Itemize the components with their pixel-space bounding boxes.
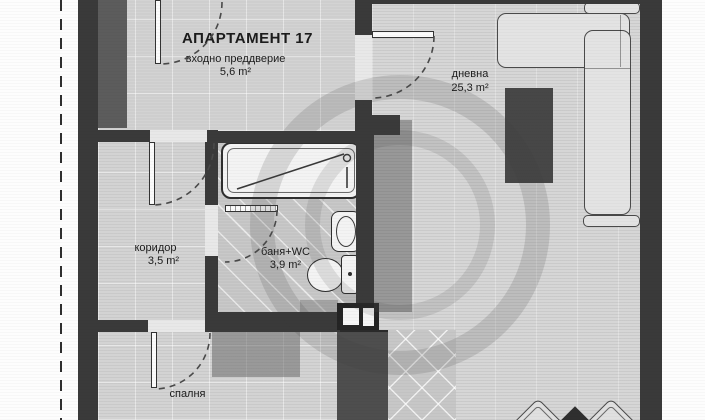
bath-right-wall bbox=[356, 131, 374, 313]
bedroom-top-wall-left bbox=[98, 320, 148, 332]
bedroom-door-leaf bbox=[151, 332, 157, 388]
sofa-armrest-bottom bbox=[583, 215, 640, 227]
stove-burner-right bbox=[363, 308, 374, 326]
bath-door-opening bbox=[205, 205, 218, 256]
coffee-table bbox=[505, 88, 553, 183]
dining-chair-left bbox=[511, 398, 565, 420]
living-door-opening bbox=[355, 35, 372, 100]
dining-set bbox=[495, 390, 645, 420]
bath-top-wall bbox=[218, 131, 358, 143]
right-outer-wall bbox=[640, 0, 662, 420]
bedroom-label: спалня bbox=[140, 388, 235, 401]
washbasin-bowl bbox=[336, 216, 356, 247]
dining-chair-right-back bbox=[591, 405, 631, 420]
kitchen-tiles-floor bbox=[388, 330, 456, 420]
corridor-door-opening bbox=[150, 130, 207, 142]
bath-door-leaf bbox=[225, 205, 278, 212]
living-area: 25,3 m² bbox=[420, 82, 520, 95]
bath-label: баня+WC bbox=[238, 246, 333, 259]
hall-label: входно преддверие bbox=[158, 53, 313, 66]
corridor-area: 3,5 m² bbox=[116, 255, 211, 268]
kitchen-counter-block bbox=[337, 330, 388, 420]
dining-chair-right bbox=[584, 398, 638, 420]
left-outer-wall bbox=[78, 0, 98, 420]
sofa-seam-vertical bbox=[620, 15, 621, 67]
corridor-door-leaf bbox=[149, 142, 155, 205]
sofa-seam-horizontal bbox=[585, 68, 630, 69]
bedroom-door-opening bbox=[148, 320, 205, 332]
hall-area: 5,6 m² bbox=[158, 66, 313, 79]
bedroom-wardrobe bbox=[212, 332, 300, 377]
floorplan-canvas: АПАРТАМЕНТ 17 входно преддверие 5,6 m² д… bbox=[0, 0, 705, 420]
toilet-tank-button bbox=[348, 272, 352, 276]
bath-area: 3,9 m² bbox=[238, 259, 333, 272]
dining-table-corner bbox=[555, 406, 595, 420]
sofa-seat-right bbox=[584, 30, 631, 215]
hall-closet-block bbox=[98, 0, 127, 128]
bathtub-inner-rim bbox=[227, 148, 355, 193]
bathtub bbox=[221, 142, 361, 199]
hall-living-wall-lower bbox=[355, 100, 372, 135]
living-label: дневна bbox=[420, 68, 520, 81]
corridor-top-wall bbox=[98, 130, 150, 142]
hall-living-wall-upper bbox=[355, 0, 372, 35]
apartment-title: АПАРТАМЕНТ 17 bbox=[150, 30, 345, 47]
bedroom-top-wall-right bbox=[205, 312, 340, 332]
corridor-label: коридор bbox=[108, 242, 203, 255]
shaft-stub-wall bbox=[372, 115, 400, 135]
dining-chair-left-back bbox=[518, 405, 558, 420]
top-wall-strip bbox=[372, 0, 642, 4]
living-door-leaf bbox=[372, 31, 434, 38]
stove-unit-frame bbox=[337, 303, 379, 330]
stove-burner-left bbox=[343, 308, 359, 325]
